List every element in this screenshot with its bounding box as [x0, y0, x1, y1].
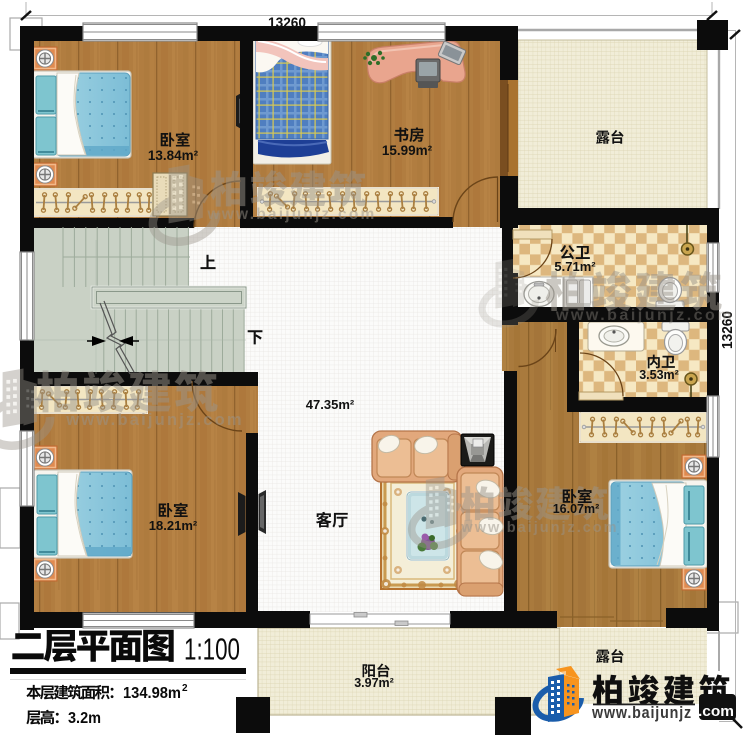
svg-text:3.53m²: 3.53m² [639, 368, 679, 382]
svg-text:134.98m: 134.98m [123, 685, 181, 702]
svg-text:.com: .com [698, 703, 734, 720]
svg-text:www.baijunjz.com: www.baijunjz.com [207, 206, 377, 223]
svg-text:www.baijunjz: www.baijunjz [591, 703, 692, 722]
svg-text:3.2m: 3.2m [68, 710, 101, 727]
svg-text:www.baijunjz.com: www.baijunjz.com [555, 307, 734, 324]
svg-text:2: 2 [182, 683, 188, 694]
svg-text:www.baijunjz.com: www.baijunjz.com [460, 520, 618, 536]
svg-text:47.35m²: 47.35m² [306, 397, 355, 412]
svg-text:www.baijunjz.com: www.baijunjz.com [65, 411, 244, 429]
svg-text:13260: 13260 [268, 15, 306, 32]
svg-text:16.07m²: 16.07m² [553, 502, 600, 516]
svg-text:1:100: 1:100 [184, 632, 240, 667]
svg-text:18.21m²: 18.21m² [149, 518, 198, 533]
svg-text:15.99m²: 15.99m² [382, 143, 433, 158]
svg-text:5.71m²: 5.71m² [554, 259, 596, 274]
svg-text:13.84m²: 13.84m² [148, 148, 199, 163]
svg-text:3.97m²: 3.97m² [354, 676, 394, 690]
